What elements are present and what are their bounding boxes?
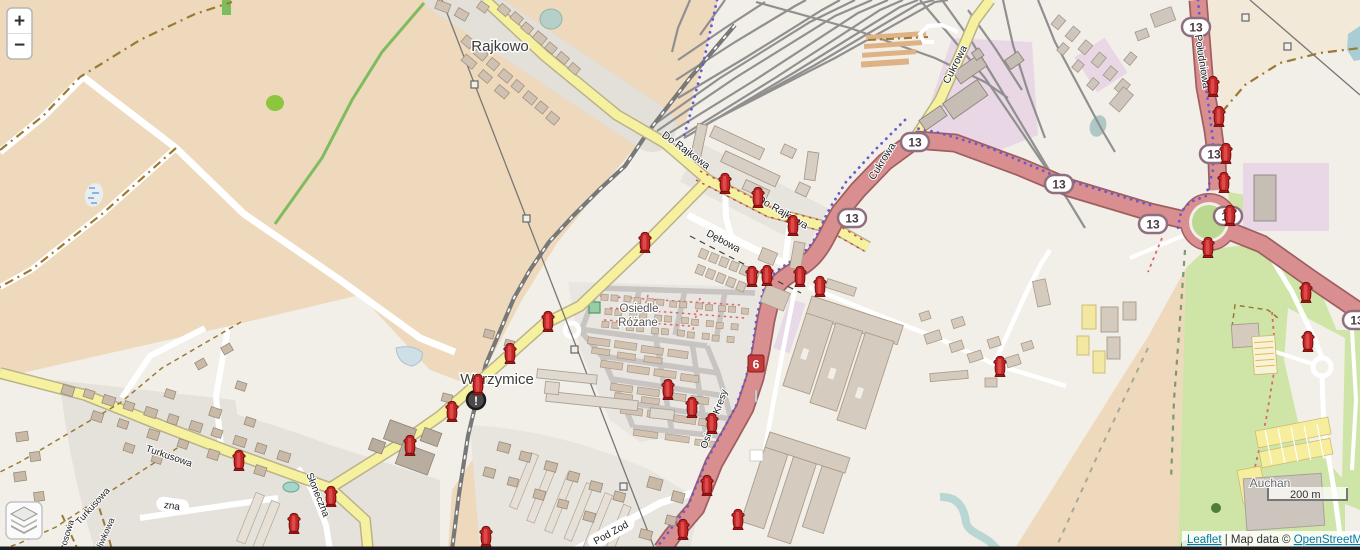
svg-text:13: 13 <box>1207 148 1221 162</box>
svg-text:Różane: Różane <box>618 317 658 329</box>
svg-text:13: 13 <box>1146 218 1160 232</box>
svg-text:Rajkowo: Rajkowo <box>471 38 529 55</box>
svg-text:13: 13 <box>908 136 922 150</box>
svg-text:200 m: 200 m <box>1290 489 1321 501</box>
svg-text:13: 13 <box>1052 178 1066 192</box>
svg-text:+: + <box>14 11 25 32</box>
svg-text:13: 13 <box>845 212 859 226</box>
svg-text:Leaflet | Map data © OpenStree: Leaflet | Map data © OpenStreetMap <box>1187 534 1360 546</box>
svg-text:6: 6 <box>753 358 760 372</box>
svg-text:−: − <box>14 35 25 56</box>
svg-text:Osiedle: Osiedle <box>620 303 659 315</box>
svg-text:13: 13 <box>1189 21 1203 35</box>
svg-text:zna: zna <box>163 500 181 513</box>
svg-text:13: 13 <box>1350 314 1360 328</box>
svg-text:!: ! <box>474 394 478 408</box>
svg-text:Warzymice: Warzymice <box>460 371 534 388</box>
